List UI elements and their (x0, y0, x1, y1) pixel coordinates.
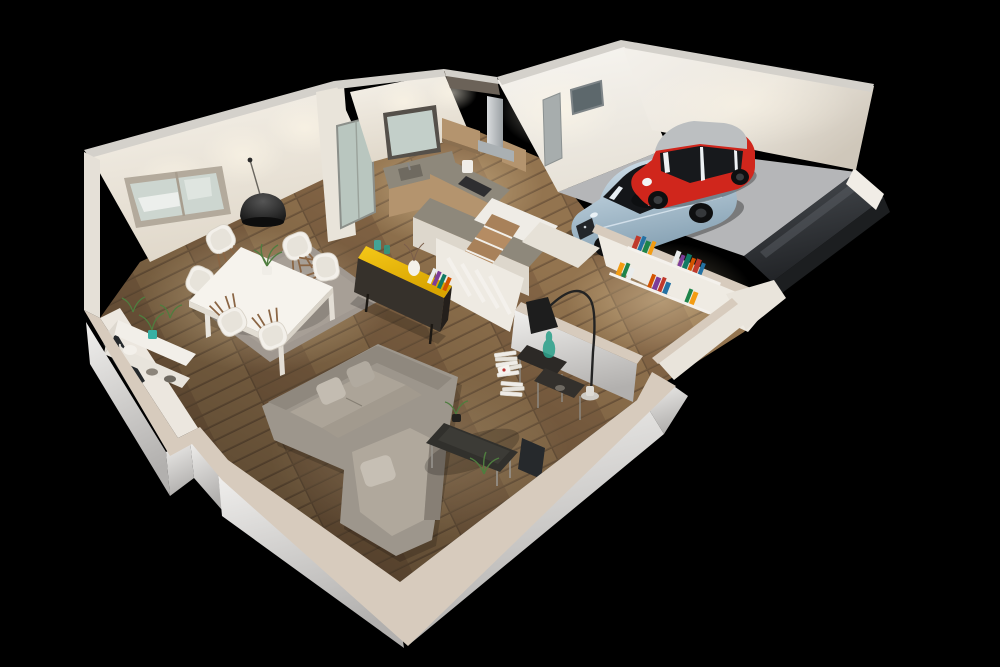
teal-pot (148, 330, 157, 339)
window-reflection-2 (184, 177, 212, 200)
pendant-mount (248, 158, 253, 163)
magazine-dot (502, 368, 505, 371)
pendant-rim (242, 217, 284, 227)
plant-pot (262, 266, 272, 275)
floorplan-render (0, 0, 1000, 667)
sedan-badge (584, 226, 587, 229)
west-wall-endcap (84, 152, 100, 318)
coffee-machine (462, 160, 473, 173)
teapot (123, 345, 137, 355)
kitchen-window-glass (387, 110, 437, 156)
garage-side-door (543, 93, 562, 166)
bowl (164, 375, 176, 382)
bowl (146, 368, 158, 375)
hood-chimney (487, 96, 503, 148)
green-jar (384, 245, 390, 254)
green-jar (374, 240, 381, 250)
sedan-rear-rim (696, 209, 707, 218)
ashtray (555, 385, 565, 391)
citycar-front-rim (654, 196, 663, 204)
citycar-rear-rim (736, 174, 744, 181)
floorplan-svg (0, 0, 1000, 667)
lamp-base-column (586, 386, 594, 396)
table-plant-pot (452, 414, 461, 422)
book-stack (500, 381, 525, 397)
white-vase (408, 260, 420, 276)
kitchen-window (383, 105, 441, 160)
